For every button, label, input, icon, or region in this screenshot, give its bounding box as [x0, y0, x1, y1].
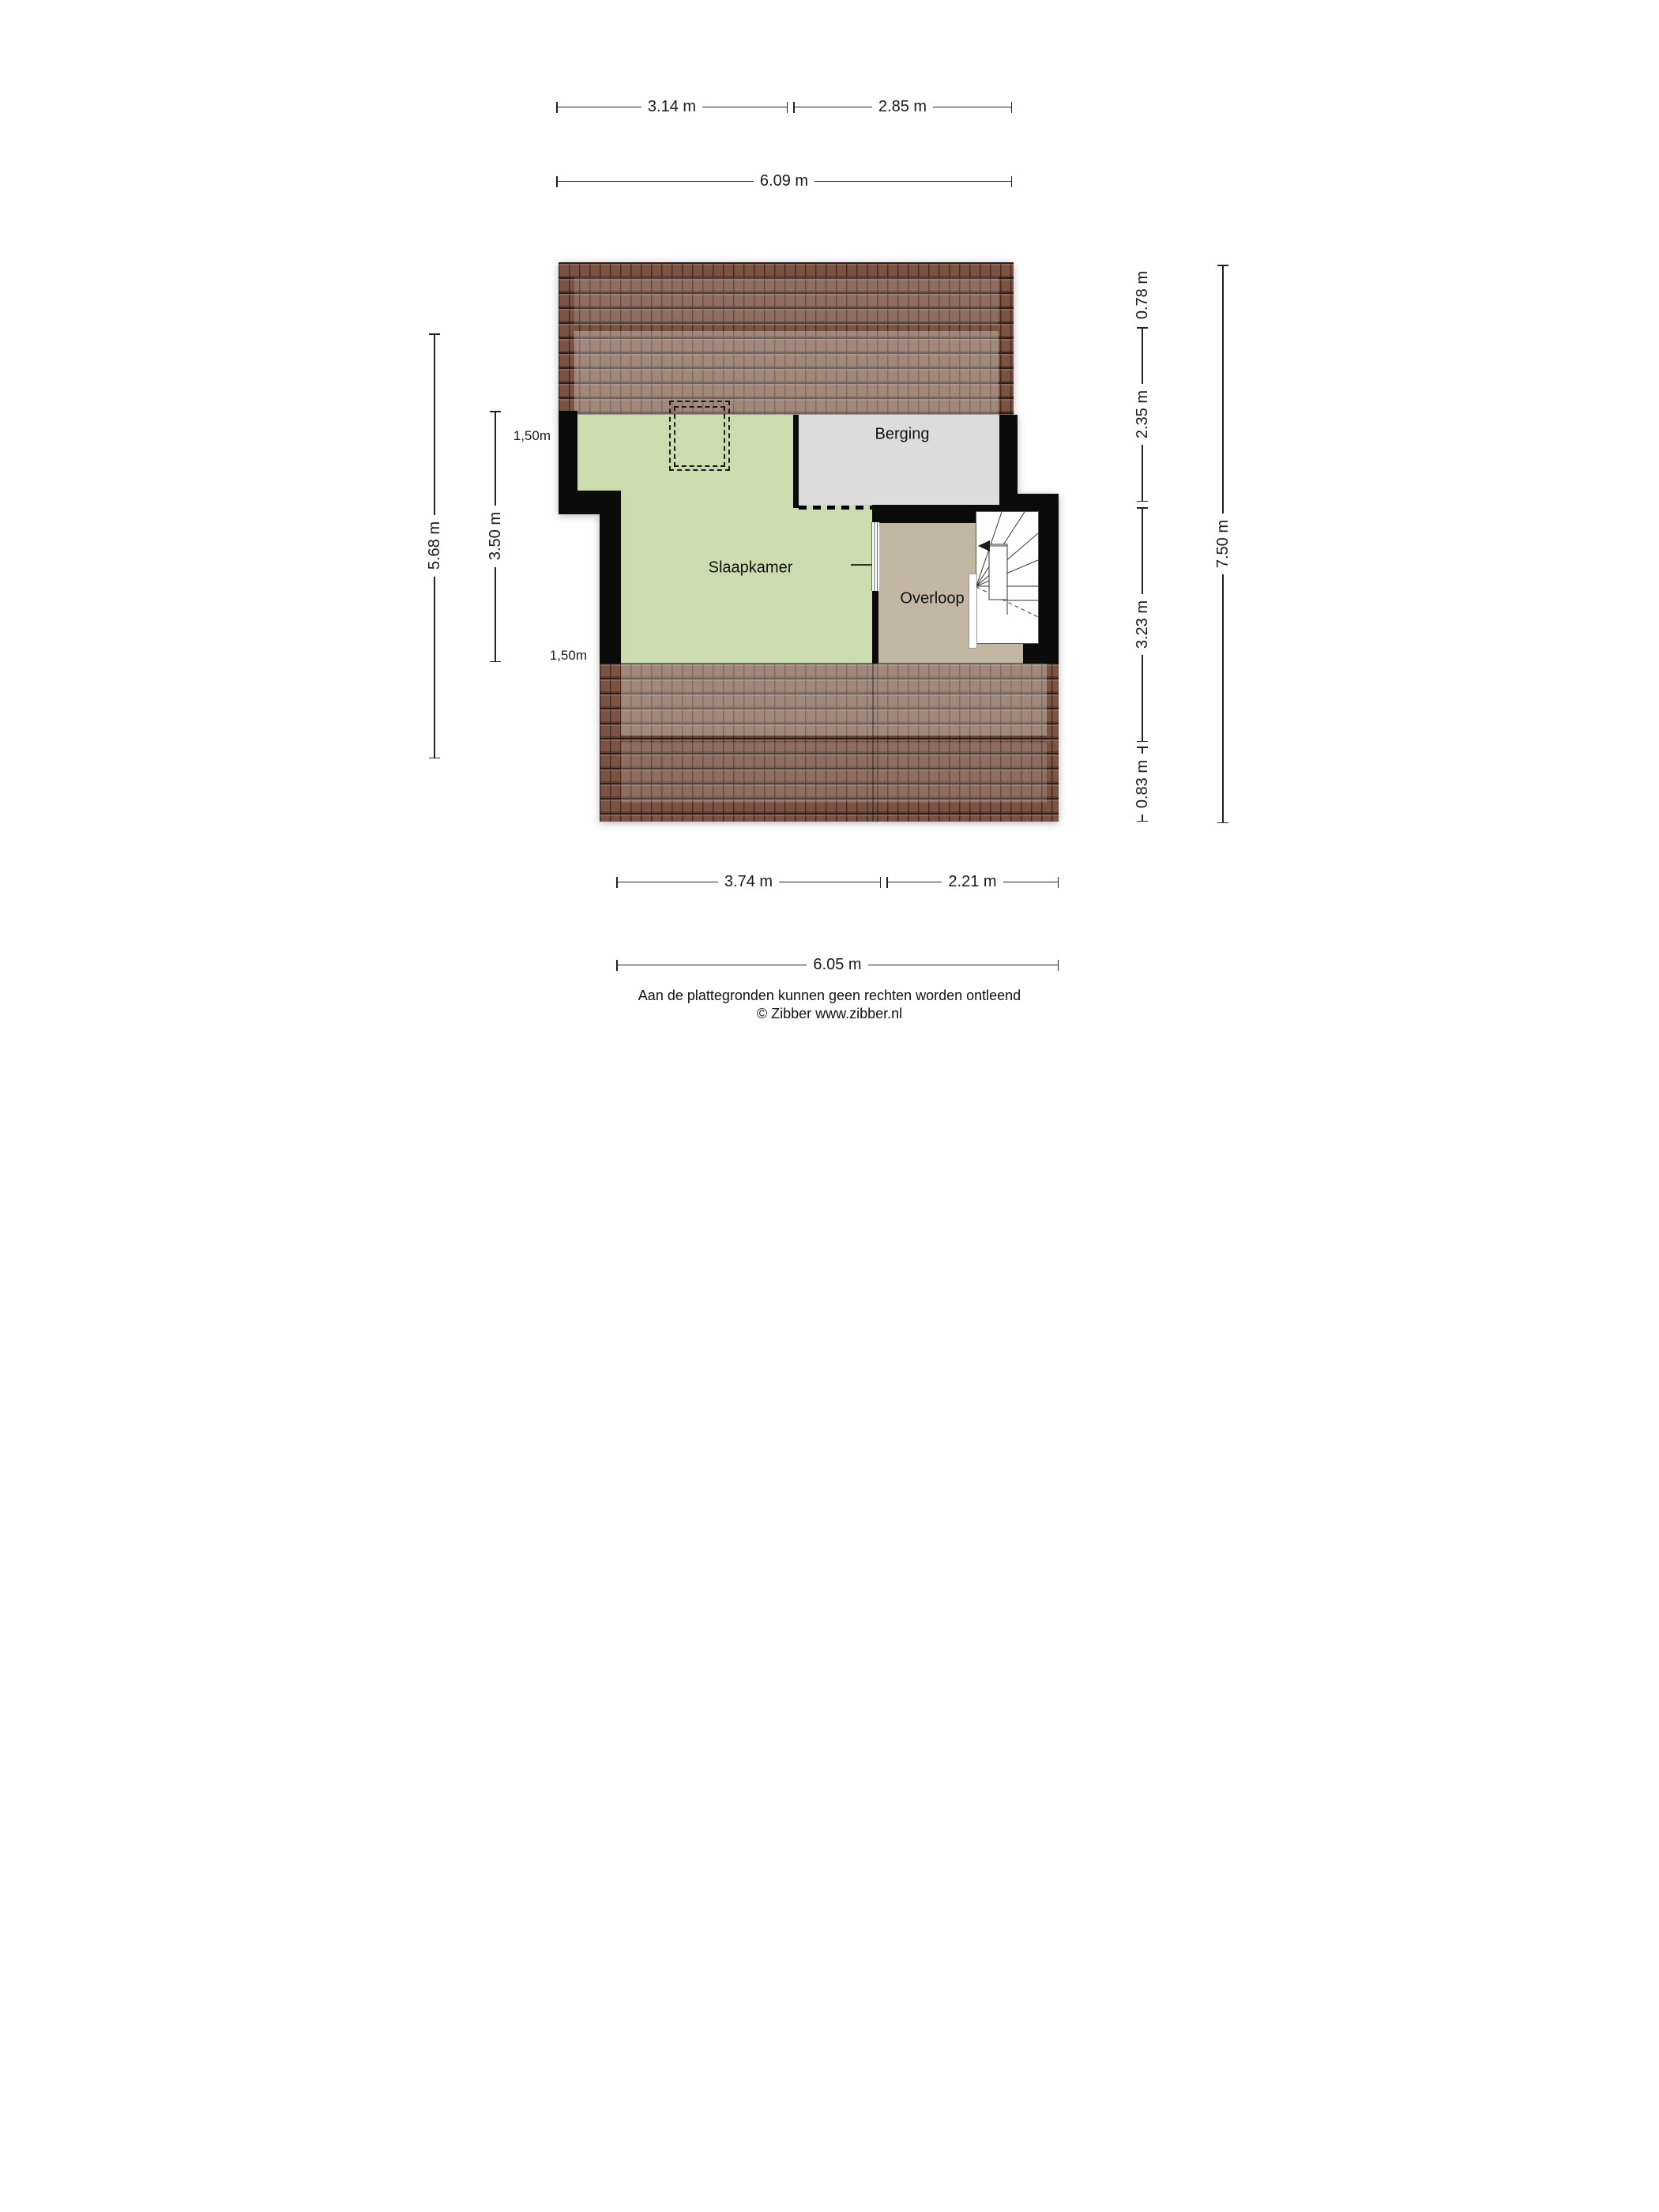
dim-line — [1003, 882, 1058, 883]
dim-tick — [490, 661, 501, 663]
dim-line — [1142, 329, 1143, 384]
staircase — [976, 512, 1038, 643]
dim-line — [795, 107, 872, 108]
door-tick-mark — [851, 564, 872, 566]
dim-tick — [880, 877, 882, 888]
floorplan: Berging Slaapkamer Overloop — [415, 0, 1244, 1106]
dim-tick — [1137, 501, 1148, 502]
dim-value: 7.50 m — [1214, 513, 1232, 574]
dimension-top-left: 3.14 m — [556, 98, 788, 116]
dimension-right-seg1: 0.78 m — [1133, 265, 1152, 322]
room-slaapkamer-floor — [621, 505, 872, 663]
dim-line — [1222, 574, 1224, 822]
wall-stairwell-right — [1038, 512, 1059, 664]
dim-line — [495, 567, 496, 661]
dim-value: 6.09 m — [754, 172, 814, 190]
dimension-top-right: 2.85 m — [793, 98, 1012, 116]
dim-line — [1142, 814, 1143, 820]
dim-line — [495, 412, 496, 506]
wall-left-step — [559, 491, 621, 514]
dim-value: 3.14 m — [641, 98, 702, 116]
dim-value: 0.83 m — [1134, 754, 1152, 814]
dim-value: 2.85 m — [872, 98, 933, 116]
roof-height-overlay-upper — [574, 277, 999, 325]
dim-tick — [429, 758, 440, 759]
dim-line — [558, 181, 754, 182]
dimension-right-seg3: 3.23 m — [1133, 507, 1152, 742]
footer-copyright: © Zibber www.zibber.nl — [415, 1006, 1244, 1022]
dim-tick — [1058, 960, 1059, 971]
dimension-right-seg2: 2.35 m — [1133, 327, 1152, 502]
dimension-left-inner: 3.50 m — [486, 411, 505, 662]
dim-line — [888, 882, 942, 883]
dimension-left-outer: 5.68 m — [425, 333, 444, 758]
dim-value: 0.78 m — [1134, 265, 1152, 325]
floorplan-canvas: Berging Slaapkamer Overloop 1,50m 1,50m … — [415, 0, 1244, 1106]
dim-line — [618, 882, 718, 883]
dim-tick — [787, 102, 788, 113]
wall-stairwell-bottom — [1023, 642, 1059, 664]
dimension-bottom-total: 6.05 m — [616, 956, 1059, 974]
door-slaapkamer-overloop — [871, 522, 879, 591]
dim-value: 3.50 m — [487, 506, 505, 566]
dim-tick — [1137, 821, 1148, 822]
roof-height-overlay-upper — [621, 663, 1047, 735]
dim-line — [702, 107, 786, 108]
dim-line — [618, 965, 807, 966]
dim-tick — [1011, 176, 1013, 187]
roof-height-overlay-lower — [574, 331, 999, 415]
wall-stairwell-top — [999, 494, 1059, 513]
dashed-skylight-outline-inner — [674, 406, 725, 467]
dim-line — [868, 965, 1058, 966]
dim-line — [434, 577, 435, 758]
dim-value: 3.23 m — [1134, 594, 1152, 655]
wall-interior-slaapkamer-overloop — [872, 590, 878, 664]
roof-bottom-band — [600, 663, 1059, 822]
open-boundary-dashed-line — [799, 506, 872, 510]
dim-value: 6.05 m — [807, 956, 867, 974]
wall-left-lower — [600, 513, 621, 664]
dimension-top-total: 6.09 m — [556, 172, 1012, 190]
dim-tick — [1137, 741, 1148, 743]
dim-value: 2.35 m — [1134, 384, 1152, 445]
dim-line — [1142, 509, 1143, 594]
dim-line — [1142, 655, 1143, 740]
roof-top-band — [559, 262, 1014, 415]
room-label-berging: Berging — [875, 426, 930, 444]
dim-tick — [1011, 102, 1013, 113]
dim-value: 2.21 m — [942, 873, 1003, 891]
dim-line — [1222, 266, 1224, 513]
dim-line — [779, 882, 879, 883]
dim-line — [1142, 445, 1143, 500]
dim-tick — [1217, 822, 1228, 824]
roof-height-overlay-lower — [621, 743, 1047, 803]
roof-seam-line — [872, 663, 874, 822]
dim-value: 5.68 m — [426, 515, 444, 576]
room-slaapkamer-floor — [621, 491, 793, 506]
wall-berging-left — [793, 415, 799, 508]
height-label-150-bottom: 1,50m — [533, 648, 587, 664]
dimension-bottom-right: 2.21 m — [886, 873, 1059, 891]
stair-landing — [989, 544, 1007, 600]
dimension-right-total: 7.50 m — [1213, 265, 1232, 823]
room-label-slaapkamer: Slaapkamer — [709, 559, 793, 577]
dimension-right-seg4: 0.83 m — [1133, 747, 1152, 822]
room-label-overloop: Overloop — [900, 590, 964, 608]
dim-line — [558, 107, 641, 108]
height-label-150-top: 1,50m — [497, 428, 551, 444]
dim-line — [814, 181, 1010, 182]
footer-disclaimer: Aan de plattegronden kunnen geen rechten… — [415, 987, 1244, 1004]
dimension-bottom-left: 3.74 m — [616, 873, 881, 891]
dim-value: 3.74 m — [718, 873, 779, 891]
dim-line — [434, 335, 435, 516]
dim-line — [933, 107, 1010, 108]
dim-tick — [1058, 877, 1059, 888]
stair-direction-arrow — [978, 540, 990, 551]
dim-line — [1142, 748, 1143, 754]
